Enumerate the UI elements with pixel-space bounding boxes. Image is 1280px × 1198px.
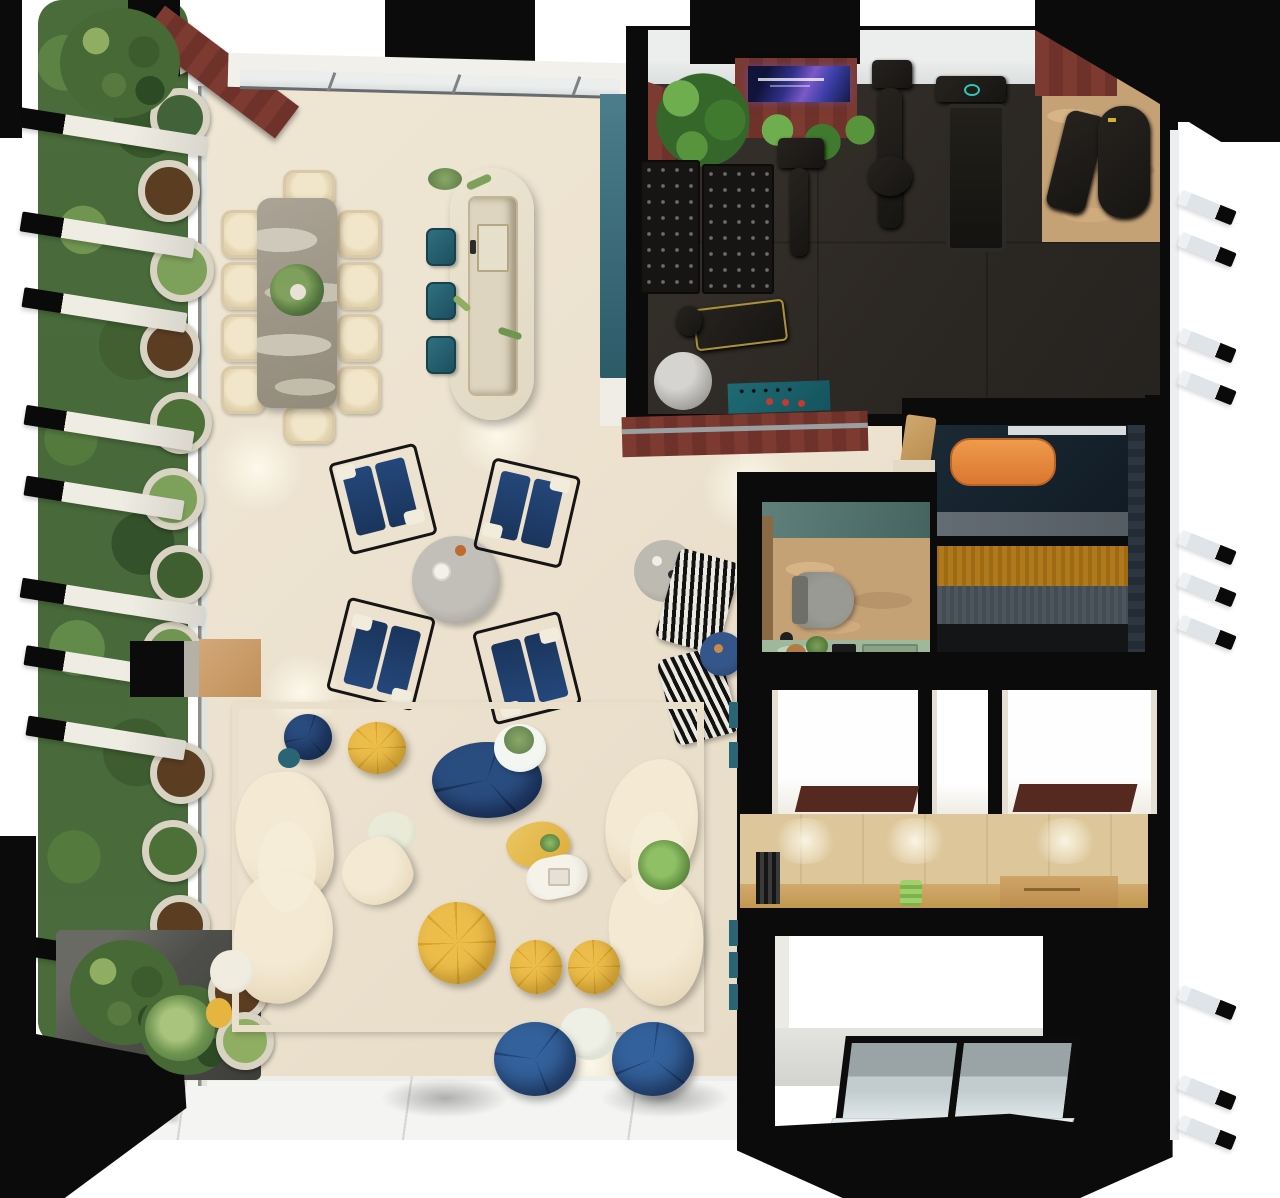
plant-pot	[142, 820, 204, 882]
tv-screen	[748, 66, 850, 102]
teal-door-accent	[729, 742, 738, 768]
water-bottle-red	[766, 398, 773, 405]
bright-lower-room	[775, 936, 1057, 1032]
bathroom-teal-band	[762, 502, 930, 542]
facade-edge-black	[0, 836, 36, 1198]
sauna-amber-bench	[930, 546, 1148, 586]
room-divider	[988, 690, 1002, 814]
facade-fin	[1177, 190, 1236, 226]
bench-headpad	[676, 306, 702, 336]
teal-door-accent	[729, 984, 738, 1010]
right-black-box	[1178, 28, 1230, 122]
facade-fin	[1177, 572, 1236, 608]
hanging-plant	[428, 168, 462, 190]
corner-black-strip	[0, 0, 22, 138]
yellow-pumpkin-pouf	[568, 940, 620, 994]
teal-door-accent	[729, 702, 738, 728]
dining-chair	[337, 314, 381, 362]
yellow-sliver-pouf	[206, 998, 232, 1028]
cabinet-light	[770, 818, 840, 864]
navy-floor-pouf	[612, 1022, 694, 1096]
toilet-tank	[792, 576, 808, 624]
bone-table-tray	[548, 868, 570, 886]
pouf-shadow	[380, 1078, 510, 1118]
bar-stool-teal	[426, 228, 456, 266]
facade-fin	[1177, 232, 1236, 268]
gym-south-maroon-wall	[622, 411, 869, 457]
centerpiece-vase	[290, 284, 306, 300]
teal-mini-pouf	[278, 748, 300, 768]
bathroom-door-wood	[762, 516, 773, 642]
sauna-gray-bench	[930, 586, 1148, 624]
leg-press-frame	[1098, 106, 1150, 218]
teal-door-accent	[729, 920, 738, 946]
sofa-cushion	[258, 822, 316, 912]
cabinet-light	[880, 818, 950, 864]
floorplan-render	[0, 0, 1280, 1198]
facade-fin	[1177, 985, 1236, 1021]
orange-lounger	[950, 438, 1056, 486]
dining-chair	[283, 406, 335, 444]
multi-gym-seat	[868, 156, 912, 196]
coffee-cup	[432, 562, 451, 581]
sofa-plant	[638, 840, 690, 890]
treadmill-belt	[946, 104, 1006, 252]
teal-wall-panel	[600, 94, 628, 380]
dining-chair	[337, 366, 381, 414]
sauna-concrete-step	[930, 512, 1148, 536]
leg-press-accent	[1108, 118, 1116, 122]
planter-cabbage-plant	[145, 995, 215, 1061]
exercise-bike-frame	[790, 168, 808, 256]
table-plant	[504, 726, 534, 754]
bar-stool-teal	[426, 336, 456, 374]
orange-decor-item	[455, 545, 466, 556]
facade-fin	[1177, 370, 1236, 406]
room-divider	[918, 690, 932, 814]
garden-console-gray	[184, 641, 199, 697]
green-glass-vase	[900, 880, 922, 906]
wood-desk	[1000, 876, 1118, 908]
cabinet-light	[1030, 818, 1100, 864]
plant-pot	[138, 160, 200, 222]
yellow-pumpkin-pouf	[510, 940, 562, 994]
sauna-gap	[930, 536, 1148, 546]
facade-fin	[1177, 1075, 1236, 1111]
blob-table-plant	[540, 834, 560, 852]
side-table-item	[652, 556, 662, 566]
black-valet-stand	[756, 852, 780, 904]
island-faucet	[470, 240, 476, 254]
facade-fin	[1177, 530, 1236, 566]
plant-pot	[150, 545, 210, 605]
facade-fin	[1177, 615, 1236, 651]
island-sink	[477, 224, 509, 272]
water-bottle-red	[798, 400, 805, 407]
maroon-wardrobe-top	[1013, 784, 1138, 812]
side-table-decor	[714, 644, 723, 653]
garden-console-black	[130, 641, 184, 697]
yellow-pouf-large	[418, 902, 496, 984]
teal-gym-mat	[728, 380, 831, 414]
sauna-ceiling-slit	[1008, 426, 1126, 435]
gym-plant	[648, 66, 758, 174]
bar-stool-teal	[426, 282, 456, 320]
multi-gym-machine	[872, 60, 912, 88]
maroon-wardrobe-top	[795, 786, 919, 812]
garden-console-wood	[199, 639, 261, 697]
treadmill-console	[936, 76, 1006, 102]
dumbbell-rack	[702, 164, 774, 294]
facade-fin	[1177, 328, 1236, 364]
dumbbell-rack	[640, 160, 700, 294]
yellow-flower-pouf	[348, 722, 406, 774]
white-side-disc	[210, 950, 254, 994]
corner-palm	[60, 8, 180, 118]
facade-fin	[1177, 1115, 1236, 1151]
navy-floor-pouf	[494, 1022, 576, 1096]
exercise-ball	[654, 352, 712, 410]
exercise-bike	[778, 138, 824, 168]
right-facade-strip	[1170, 130, 1179, 1140]
gym-ceiling-notch	[690, 0, 860, 64]
teal-door-accent	[729, 952, 738, 978]
water-bottle-red	[782, 399, 789, 406]
dining-chair	[337, 210, 381, 258]
dining-chair	[337, 262, 381, 310]
